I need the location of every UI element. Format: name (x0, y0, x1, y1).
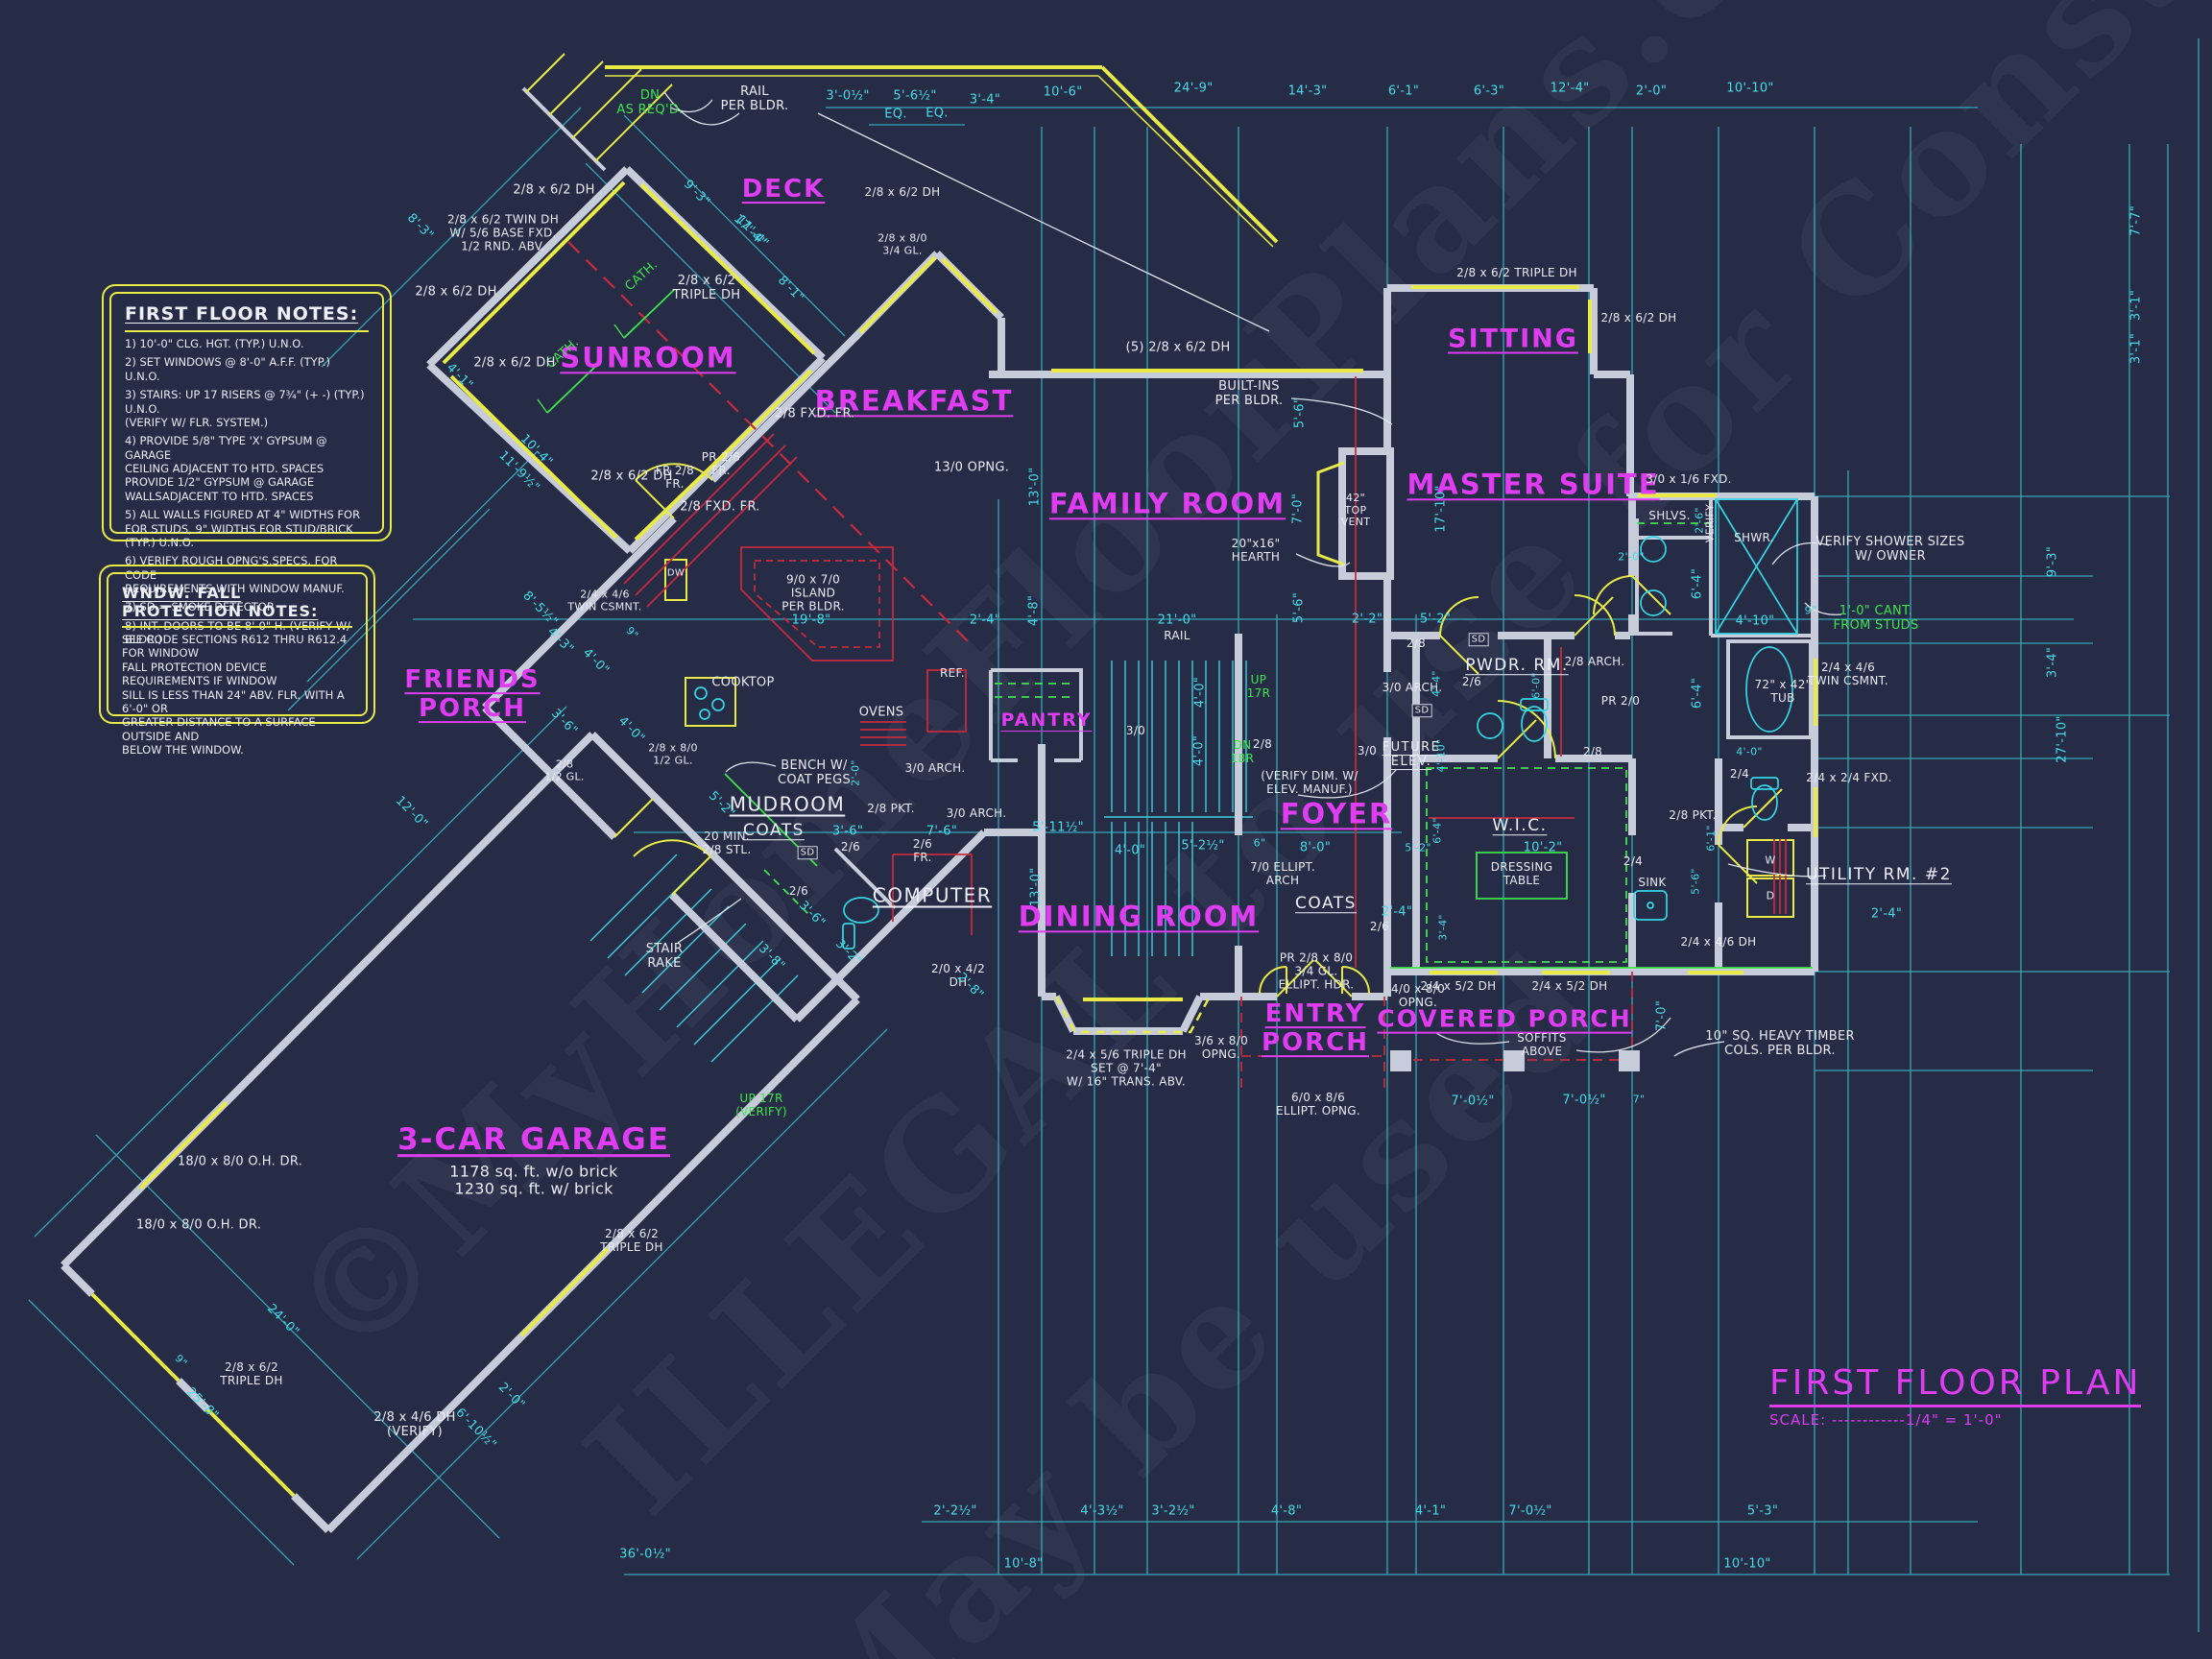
plan-annotation: (VERIFY DIM. W/ ELEV. MANUF.) (1261, 770, 1358, 797)
first-floor-notes-box: FIRST FLOOR NOTES: 1) 10'-0" CLG. HGT. (… (102, 284, 392, 541)
plan-annotation: 6'-3" (1474, 85, 1504, 100)
plan-annotation: DECK (742, 176, 826, 204)
plan-annotation: 3/6 x 8/0 OPNG. (1194, 1035, 1248, 1062)
plan-annotation: 6'-4" (1692, 678, 1706, 709)
plan-annotation: 6" (1254, 838, 1266, 851)
fall-notes-body: SEE CODE SECTIONS R612 THRU R612.4 FOR W… (122, 633, 352, 757)
plan-annotation: 9'-3" (2047, 546, 2061, 577)
plan-annotation: 2/6 (841, 841, 860, 854)
plan-annotation: COOKTOP (711, 677, 774, 691)
plan-annotation: 17'-10" (1435, 485, 1450, 532)
plan-annotation: 2'-0" (1618, 552, 1645, 565)
plan-annotation: 2/8 x 6/2 TRIPLE DH (600, 1228, 663, 1255)
plan-annotation: 2/4 x 4/6 TWIN CSMNT. (1808, 661, 1888, 688)
plan-annotation: 36'-0½" (619, 1549, 671, 1563)
plan-annotation: 9/0 x 7/0 ISLAND PER BLDR. (781, 573, 845, 613)
plan-annotation: 2/8 PKT. (867, 803, 914, 816)
plan-annotation: 5'-2" (1405, 843, 1431, 855)
plan-annotation: 2/8 x 6/2 TRIPLE DH (1456, 267, 1577, 280)
plan-annotation: ENTRY PORCH (1262, 1000, 1369, 1058)
plan-annotation: 4'-0" (1736, 747, 1763, 759)
plan-annotation: 5'-2½" (1181, 840, 1224, 854)
sheet-title: FIRST FLOOR PLAN (1769, 1363, 2141, 1407)
plan-annotation: 2'-4" (1871, 908, 1902, 923)
plan-annotation: 10'-6" (1044, 86, 1083, 101)
plan-annotation: 5'-2" (1420, 613, 1451, 628)
fall-notes-title: WNDW. FALL PROTECTION NOTES: (122, 584, 352, 628)
plan-annotation: 12'-4" (1551, 83, 1590, 97)
plan-annotation: 2/8 PKT. (1669, 809, 1716, 823)
plan-annotation: 7'-6" (926, 826, 957, 840)
plan-annotation: 18/0 x 8/0 O.H. DR. (136, 1219, 261, 1234)
note-item: 1) 10'-0" CLG. HGT. (TYP.) U.N.O. (125, 337, 369, 350)
plan-annotation: SOFFITS ABOVE (1517, 1032, 1566, 1059)
plan-annotation: 8'-0" (1300, 842, 1331, 856)
porch-columns (1390, 1050, 1640, 1071)
plan-annotation: 2'-4" (970, 614, 1000, 629)
plan-annotation: 2/4 x 4/6 DH (1680, 936, 1756, 950)
plan-annotation: SITTING (1448, 324, 1578, 353)
plan-annotation: 5'-11½" (1032, 822, 1084, 836)
plan-annotation: 3'-2½" (1151, 1505, 1194, 1520)
plan-annotation: 6'-0" (1531, 672, 1544, 699)
plan-annotation: PR 2/0 (1601, 695, 1641, 709)
plan-annotation: 6'-4" (1432, 817, 1445, 844)
plan-annotation: 2/8 x 6/2 DH (513, 184, 594, 199)
plan-annotation: DW (667, 567, 685, 579)
plan-annotation: DN (1234, 739, 1252, 753)
plan-annotation: UTILITY RM. #2 (1806, 866, 1952, 885)
plan-annotation: 7'-0½" (1508, 1505, 1551, 1520)
plan-annotation: 4'-3½" (1080, 1505, 1123, 1520)
plan-annotation: 6'-1" (1706, 825, 1719, 852)
plan-annotation: 10'-8" (1004, 1558, 1044, 1573)
plan-annotation: 4'-0" (1193, 735, 1208, 766)
plan-annotation: 7'-7" (2130, 205, 2145, 236)
note-item: 3) STAIRS: UP 17 RISERS @ 7¾" (+ -) (TYP… (125, 388, 369, 429)
plan-annotation: DINING ROOM (1019, 901, 1260, 932)
plan-annotation: 14'-3" (1288, 85, 1328, 100)
plan-annotation: 5'-3" (1747, 1505, 1778, 1520)
plan-annotation: COVERED PORCH (1377, 1006, 1631, 1034)
plan-annotation: 20"x16" HEARTH (1232, 538, 1281, 565)
plan-annotation: 1178 sq. ft. w/o brick 1230 sq. ft. w/ b… (449, 1164, 617, 1199)
plan-annotation: 42" TOP VENT (1341, 493, 1371, 529)
plan-annotation: 2'-6" (1695, 507, 1707, 534)
plan-annotation: FUTURE ELEV. (1382, 741, 1441, 770)
plan-annotation: VERIFY SHOWER SIZES W/ OWNER (1815, 536, 1964, 565)
plan-annotation: 2'-2½" (933, 1505, 976, 1520)
plan-annotation: SINK (1638, 877, 1666, 890)
plan-annotation: 2/4 x 5/2 DH (1531, 980, 1607, 994)
plan-annotation: FRIENDS PORCH (404, 666, 540, 724)
plan-annotation: 3'-1" (2130, 290, 2145, 321)
plan-annotation: 7'-0" (1656, 1000, 1671, 1031)
plan-annotation: 2/6 (1462, 676, 1481, 689)
plan-annotation: 2/8 (1583, 746, 1602, 759)
plan-annotation: 4'-10" (1736, 615, 1775, 630)
plan-annotation: 2/4 x 2/4 FXD. (1806, 772, 1892, 785)
plan-annotation: 5'-6½" (893, 90, 936, 105)
plan-annotation: EQ. (884, 108, 906, 123)
plan-annotation: 2/8 x 6/2 DH (864, 186, 940, 200)
plan-annotation: 2/8 x 4/6 DH (VERIFY) (373, 1411, 455, 1440)
plan-annotation: (5) 2/8 x 6/2 DH (1125, 342, 1230, 356)
plan-annotation: 4'-0" (1115, 845, 1145, 859)
plan-annotation: 2/6 (789, 885, 808, 899)
plan-annotation: 3'-4" (1438, 914, 1451, 941)
plan-annotation: 2/6 FR. (913, 838, 932, 865)
plan-annotation: 72" x 42" TUB (1754, 679, 1811, 706)
plan-annotation: 3/0 (1358, 745, 1377, 758)
plan-annotation: W (1765, 855, 1775, 868)
plan-annotation: 4'-0" (1194, 677, 1209, 708)
plan-annotation: PWDR. RM. (1465, 657, 1569, 676)
plan-annotation: 2/8 x 6/2 TWIN DH W/ 5/6 BASE FXD, 1/2 R… (447, 213, 559, 252)
plan-annotation: 7" (1633, 1094, 1646, 1107)
plan-annotation: 2/8 ARCH. (1565, 656, 1625, 669)
plan-annotation: 2'-0" (1636, 85, 1667, 100)
plan-annotation: 2/8 FXD. FR. (775, 408, 855, 422)
plan-annotation: 4'-10" (1436, 739, 1449, 773)
plan-annotation: 6/0 x 8/6 ELLIPT. OPNG. (1276, 1092, 1360, 1118)
plan-annotation: PR 2/8 FR. (702, 451, 741, 478)
plan-annotation: 5'-6" (1294, 397, 1309, 428)
plan-annotation: COATS (743, 822, 805, 841)
notes-title: FIRST FLOOR NOTES: (125, 303, 369, 332)
plan-annotation: 3'-4" (2047, 647, 2061, 678)
plan-annotation: 2/4 x 5/6 TRIPLE DH SET @ 7'-4" W/ 16" T… (1066, 1048, 1187, 1088)
plan-annotation: 24'-9" (1174, 83, 1214, 97)
plan-annotation: 4'-4" (1431, 670, 1444, 697)
plan-annotation: 5'-6" (1691, 868, 1703, 895)
plan-annotation: 2/8 x 6/2 DH (1600, 312, 1676, 325)
plan-annotation: 2/8 FXD. FR. (680, 501, 760, 516)
plan-annotation: W.I.C. (1493, 817, 1548, 836)
plan-annotation: 13'-0" (1029, 468, 1044, 507)
plan-annotation: COATS (1295, 895, 1357, 914)
plan-annotation: 19'-8" (792, 614, 831, 629)
plan-annotation: 2/8 (1253, 738, 1272, 752)
plan-annotation: DRESSING TABLE (1491, 861, 1553, 888)
plan-annotation: VERIFY (1705, 504, 1718, 542)
plan-annotation: 7/0 ELLIPT. ARCH (1250, 861, 1315, 888)
plan-annotation: 10'-2" (1524, 842, 1563, 856)
plan-annotation: 2/8 x 6/2 DH (473, 357, 555, 372)
plan-annotation: 13/0 OPNG. (934, 462, 1009, 476)
note-item: 5) ALL WALLS FIGURED AT 4" WIDTHS FOR FO… (125, 508, 369, 549)
plan-annotation: 2/8 x 6/2 TRIPLE DH (673, 275, 741, 303)
plan-annotation: SD (798, 846, 818, 859)
plan-annotation: 3'-1" (2130, 333, 2145, 364)
plan-annotation: OVENS (859, 707, 904, 721)
plan-annotation: 13'-0" (1030, 868, 1045, 907)
plan-annotation: 2/4 (1730, 768, 1749, 781)
plan-annotation: RAIL PER BLDR. (721, 85, 789, 114)
plan-annotation: COMPUTER (873, 885, 992, 907)
plan-annotation: 3/0 ARCH. (947, 807, 1007, 821)
plan-annotation: 3-CAR GARAGE (397, 1123, 670, 1158)
plan-annotation: FAMILY ROOM (1049, 488, 1286, 519)
plan-annotation: 2/4 x 4/6 TWIN CSMNT. (567, 589, 641, 613)
plan-annotation: 2/6 (1370, 921, 1389, 934)
plan-annotation: 3/0 x 1/6 FXD. (1646, 473, 1732, 487)
plan-annotation: EQ. (926, 108, 948, 122)
plan-annotation: 10'-10" (1723, 1558, 1770, 1573)
plan-annotation: FR 2/8 FR. (656, 465, 694, 492)
plan-annotation: 10'-10" (1726, 83, 1773, 97)
plan-annotation: 21'-0" (1158, 614, 1197, 629)
plan-annotation: STAIR RAKE (646, 943, 683, 972)
sheet-scale: SCALE: ------------1/4" = 1'-0" (1769, 1411, 2141, 1429)
plan-annotation: 6'-1" (1388, 85, 1419, 100)
plan-annotation: SD (1469, 633, 1489, 646)
plan-annotation: 2/8 x 8/0 3/4 GL. (878, 232, 927, 256)
plan-annotation: 18R (1231, 753, 1255, 766)
plan-annotation: SUNROOM (560, 342, 735, 373)
plan-annotation: 2/4 x 5/2 DH (1420, 980, 1496, 994)
plan-annotation: 2/8 x 6/2 DH (415, 286, 496, 301)
plan-annotation: 4'-8" (1271, 1505, 1302, 1520)
plan-annotation: 4'-1" (1415, 1505, 1446, 1520)
plan-annotation: 1'-0" CANT. FROM STUDS (1833, 605, 1918, 634)
plan-annotation: 2/4 (1623, 855, 1643, 869)
fall-protection-notes-box: WNDW. FALL PROTECTION NOTES: SEE CODE SE… (99, 565, 375, 724)
plan-annotation: D (1767, 891, 1775, 903)
plan-annotation: 7'-0½" (1451, 1095, 1494, 1110)
plan-annotation: 2'-2" (1352, 613, 1382, 628)
plan-annotation: RAIL (1164, 630, 1190, 643)
note-item: 2) SET WINDOWS @ 8'-0" A.F.F. (TYP.) U.N… (125, 355, 369, 383)
plan-annotation: UP 17R (VERIFY) (735, 1093, 787, 1119)
plan-annotation: 3/0 ARCH. (905, 762, 966, 776)
note-item: 4) PROVIDE 5/8" TYPE 'X' GYPSUM @ GARAGE… (125, 434, 369, 503)
plan-annotation: 4'-8" (1028, 595, 1043, 626)
plan-annotation: 3'-6" (832, 826, 863, 840)
plan-annotation: 3'-4" (970, 94, 1000, 108)
plan-annotation: PR 2/8 x 8/0 3/4 GL. ELLIPT. HDR. (1279, 951, 1355, 991)
plan-annotation: UP 17R (1247, 674, 1271, 701)
plan-annotation: SHWR. (1734, 532, 1774, 545)
plan-annotation: 9" (1805, 606, 1817, 618)
plan-annotation: 27'-10" (2056, 715, 2071, 762)
plan-annotation: SHLVS. (1648, 510, 1690, 523)
plan-annotation: 2/8 (1407, 637, 1426, 651)
plan-annotation: MUDROOM (730, 794, 845, 816)
plan-annotation: 2'-0" (851, 759, 863, 786)
plan-annotation: 10" SQ. HEAVY TIMBER COLS. PER BLDR. (1705, 1030, 1855, 1059)
plan-annotation: BENCH W/ COAT PEGS (778, 759, 851, 788)
plan-annotation: 20 MIN. 2/8 STL. (703, 830, 752, 857)
plan-annotation: 2/8 x 6/2 TRIPLE DH (220, 1361, 283, 1388)
blueprint-sheet: ©MyHomeFloorPlans.comILLEGAL to use for … (0, 0, 2212, 1659)
plan-annotation: 3/0 (1126, 725, 1145, 738)
plan-annotation: 7'-0½" (1562, 1094, 1605, 1109)
plan-annotation: 18/0 x 8/0 O.H. DR. (178, 1156, 302, 1170)
plan-annotation: 6'-4" (1692, 568, 1706, 599)
title-block: FIRST FLOOR PLAN SCALE: ------------1/4"… (1769, 1363, 2141, 1429)
plan-annotation: SD (1412, 704, 1432, 717)
plan-annotation: 2'-4" (1382, 906, 1412, 921)
plan-annotation: 5'-6" (1293, 592, 1308, 623)
plan-annotation: 2/8 1/2 GL. (544, 758, 584, 782)
plan-annotation: 3'-0½" (826, 90, 869, 105)
plan-annotation: BUILT-INS PER BLDR. (1215, 380, 1284, 409)
plan-annotation: REF. (940, 667, 965, 681)
plan-annotation: PANTRY (1000, 710, 1092, 732)
plan-annotation: 7'-0" (1292, 493, 1307, 524)
plan-annotation: 2/8 x 8/0 1/2 GL. (648, 742, 698, 766)
plan-annotation: FOYER (1281, 798, 1393, 829)
plan-annotation: DN AS REQ'D. (616, 89, 683, 118)
